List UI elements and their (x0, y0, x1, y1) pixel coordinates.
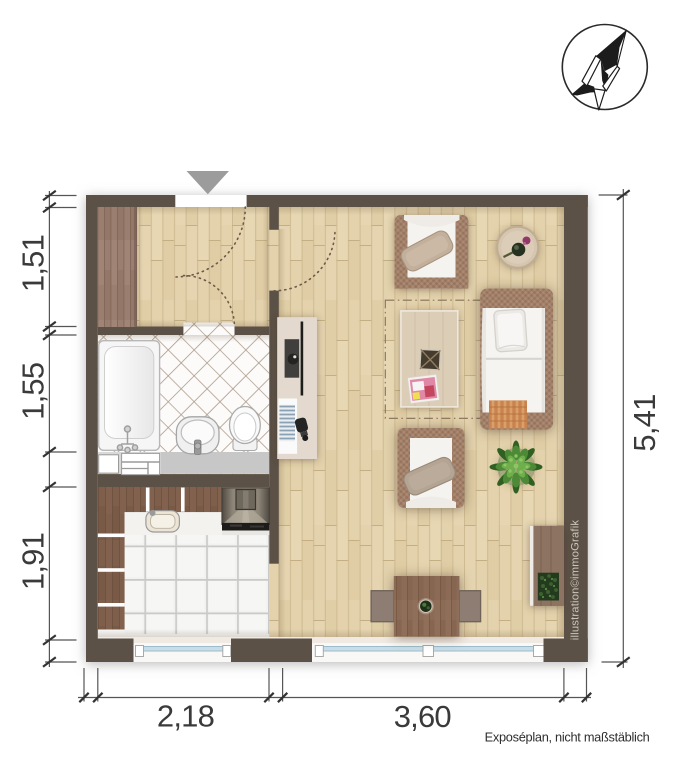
svg-text:3,60: 3,60 (394, 699, 452, 734)
svg-text:illustration©immoGrafik: illustration©immoGrafik (570, 520, 582, 641)
svg-text:1,55: 1,55 (16, 363, 51, 420)
svg-text:5,41: 5,41 (627, 394, 662, 451)
svg-text:1,91: 1,91 (16, 533, 51, 590)
svg-text:2,18: 2,18 (157, 699, 214, 734)
svg-text:1,51: 1,51 (16, 235, 51, 292)
svg-text:Exposéplan, nicht maßstäblich: Exposéplan, nicht maßstäblich (485, 730, 650, 745)
